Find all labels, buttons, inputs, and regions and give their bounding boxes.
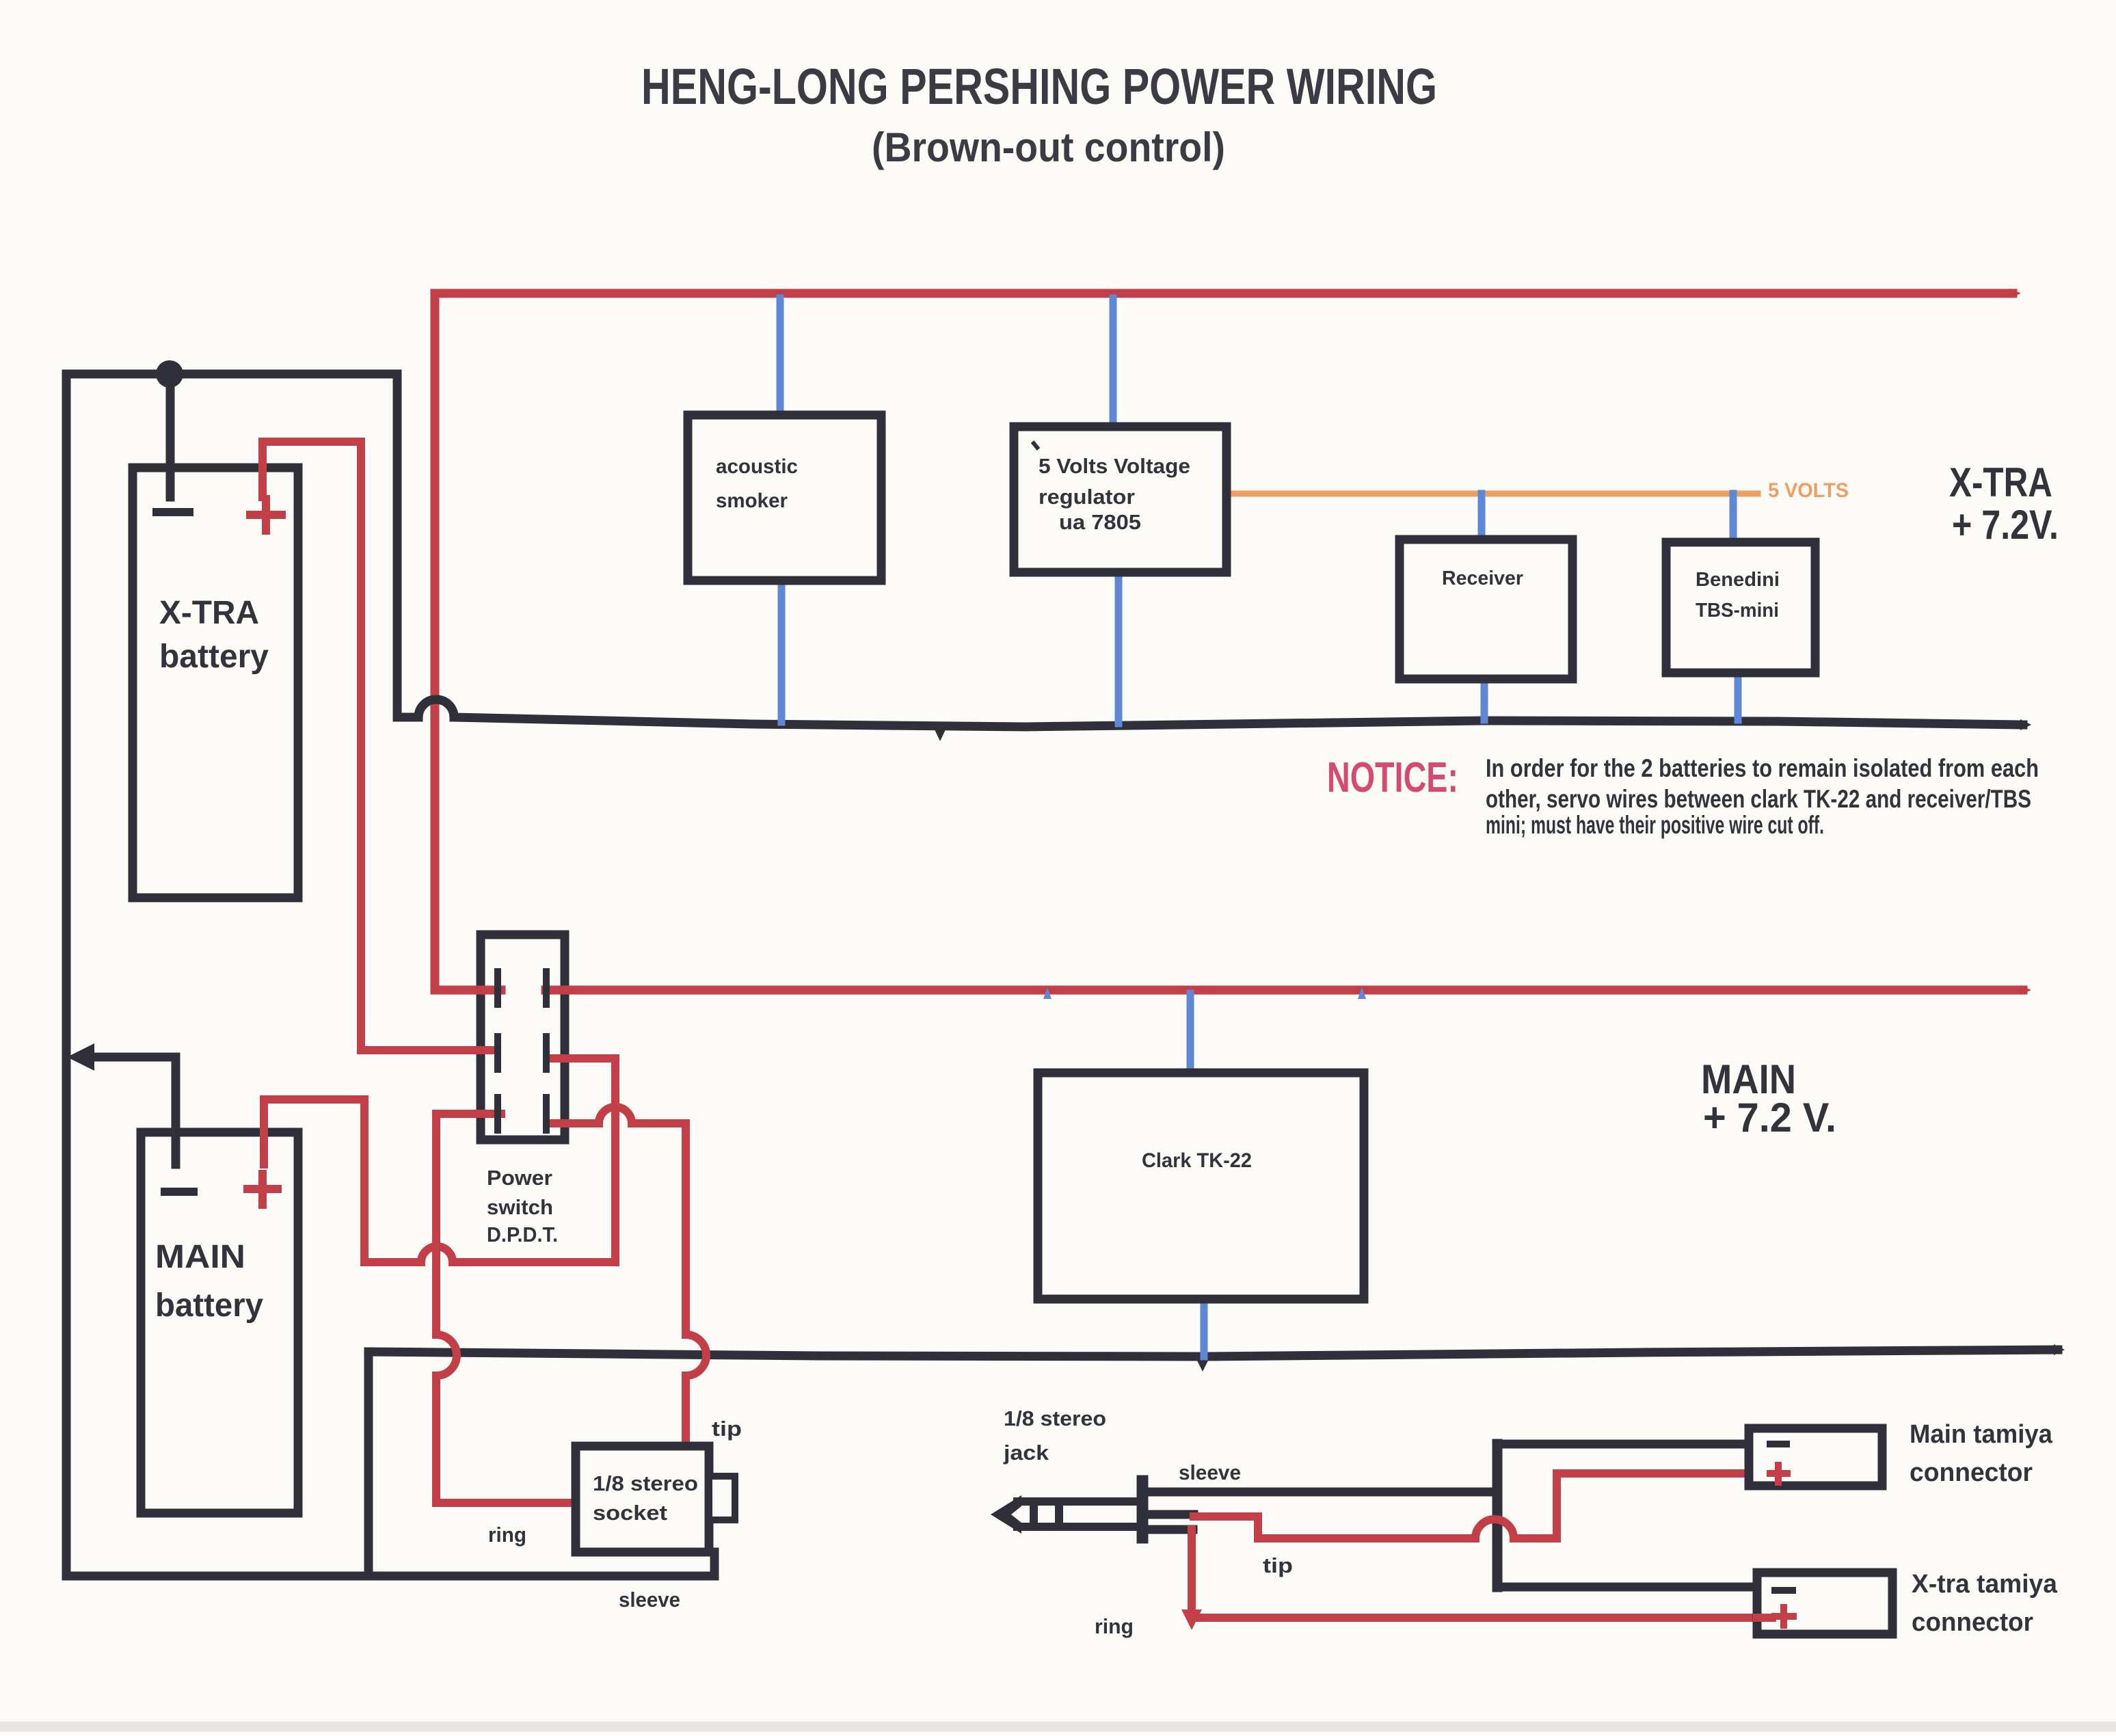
svg-text:ring: ring <box>1095 1614 1134 1638</box>
svg-text:(Brown-out control): (Brown-out control) <box>872 124 1225 170</box>
svg-text:acoustic: acoustic <box>716 455 798 478</box>
svg-text:battery: battery <box>155 1287 263 1324</box>
svg-text:battery: battery <box>159 639 269 675</box>
svg-text:1/8 stereo: 1/8 stereo <box>593 1471 698 1495</box>
svg-text:TBS-mini: TBS-mini <box>1696 600 1779 622</box>
svg-text:connector: connector <box>1912 1608 2033 1637</box>
svg-text:jack: jack <box>1003 1441 1049 1465</box>
svg-text:socket: socket <box>593 1501 667 1525</box>
svg-text:tip: tip <box>712 1417 742 1441</box>
svg-text:ua 7805: ua 7805 <box>1059 510 1141 534</box>
svg-text:D.P.D.T.: D.P.D.T. <box>487 1223 558 1246</box>
svg-text:Benedini: Benedini <box>1696 569 1780 591</box>
svg-text:Power: Power <box>487 1166 552 1190</box>
svg-text:tip: tip <box>1263 1553 1293 1577</box>
svg-text:other, servo wires between cla: other, servo wires between clark TK-22 a… <box>1486 785 2031 813</box>
svg-text:+ 7.2 V.: + 7.2 V. <box>1703 1095 1836 1140</box>
svg-text:HENG-LONG PERSHING POWER WIRIN: HENG-LONG PERSHING POWER WIRING <box>641 58 1437 115</box>
svg-text:5 Volts Voltage: 5 Volts Voltage <box>1039 454 1190 478</box>
svg-text:1/8 stereo: 1/8 stereo <box>1004 1406 1106 1430</box>
svg-text:switch: switch <box>487 1195 553 1219</box>
svg-text:ring: ring <box>488 1523 526 1547</box>
svg-text:Main tamiya: Main tamiya <box>1910 1420 2053 1449</box>
svg-text:Receiver: Receiver <box>1442 567 1523 589</box>
svg-text:NOTICE:: NOTICE: <box>1327 754 1458 801</box>
svg-text:+ 7.2V.: + 7.2V. <box>1952 502 2059 548</box>
svg-text:connector: connector <box>1910 1458 2033 1487</box>
svg-text:MAIN: MAIN <box>155 1239 245 1275</box>
svg-text:sleeve: sleeve <box>1179 1460 1241 1484</box>
svg-text:sleeve: sleeve <box>619 1588 680 1612</box>
svg-text:X-tra tamiya: X-tra tamiya <box>1912 1570 2058 1599</box>
svg-text:X-TRA: X-TRA <box>159 595 259 631</box>
svg-text:X-TRA: X-TRA <box>1949 459 2052 505</box>
svg-text:5 VOLTS: 5 VOLTS <box>1768 479 1849 502</box>
svg-text:mini; must have their positive: mini; must have their positive wire cut … <box>1486 811 1824 839</box>
svg-text:smoker: smoker <box>716 490 788 512</box>
svg-text:regulator: regulator <box>1039 485 1135 509</box>
svg-text:Clark TK-22: Clark TK-22 <box>1142 1149 1252 1172</box>
svg-text:In order for the 2 batteries t: In order for the 2 batteries to remain i… <box>1486 754 2039 782</box>
